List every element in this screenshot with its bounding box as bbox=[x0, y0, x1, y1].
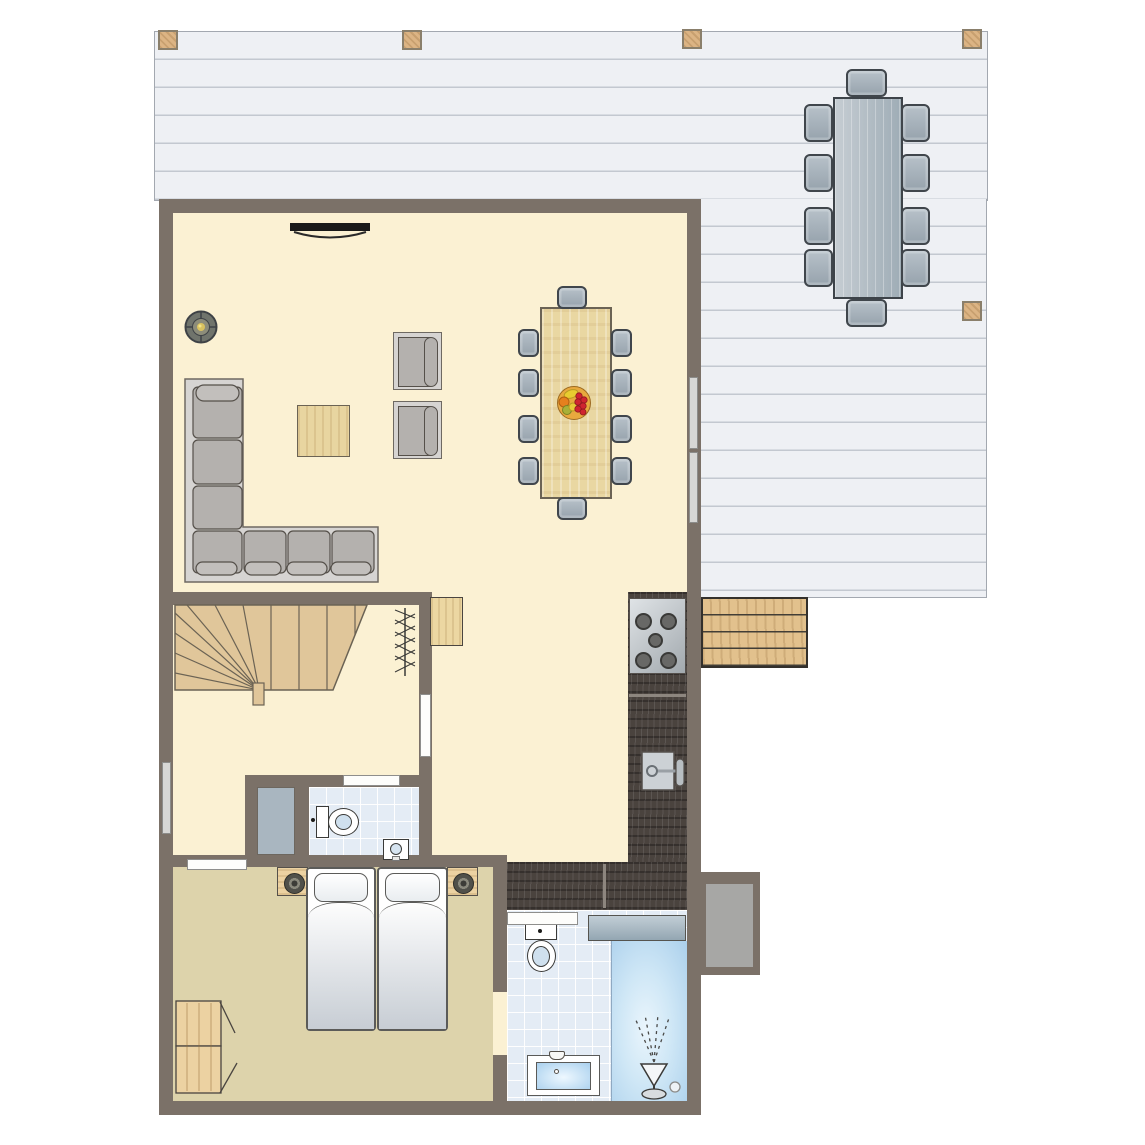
dining-chair bbox=[611, 329, 632, 357]
wall-toilet-top bbox=[245, 775, 432, 787]
toilet-button bbox=[311, 818, 315, 822]
staircase bbox=[173, 599, 373, 711]
hand-basin-tap bbox=[392, 856, 400, 861]
dining-chair bbox=[557, 497, 587, 520]
wood-stove bbox=[184, 310, 218, 344]
floor-plan bbox=[0, 0, 1145, 1145]
patio-chair bbox=[846, 299, 887, 327]
dining-chair bbox=[557, 286, 587, 309]
bed bbox=[377, 867, 448, 1031]
counter-divider bbox=[629, 694, 686, 697]
radiator bbox=[588, 915, 686, 941]
patio-chair bbox=[804, 104, 833, 142]
bedside-lamp bbox=[284, 873, 305, 894]
bed bbox=[306, 867, 376, 1031]
patio-chair bbox=[804, 207, 833, 245]
burner bbox=[635, 652, 652, 669]
dining-chair bbox=[611, 415, 632, 443]
kitchen-sink bbox=[640, 750, 690, 794]
burner bbox=[648, 633, 663, 648]
patio-dining-table bbox=[833, 97, 903, 299]
coat-rack bbox=[392, 606, 418, 678]
blanket bbox=[308, 902, 374, 1029]
armchair-backrest bbox=[424, 406, 438, 456]
pillow bbox=[385, 873, 440, 902]
vanity-basin bbox=[536, 1062, 591, 1090]
bedside-lamp bbox=[453, 873, 474, 894]
blanket bbox=[379, 902, 446, 1029]
window-deck-door-upper bbox=[689, 377, 698, 449]
deck-post bbox=[962, 29, 982, 49]
fruit-bowl bbox=[556, 385, 592, 421]
vanity-drain bbox=[554, 1069, 559, 1074]
wall-toilet-left bbox=[245, 775, 257, 867]
deck-post bbox=[158, 30, 178, 50]
counter-divider bbox=[603, 864, 606, 908]
toilet-button bbox=[538, 929, 542, 933]
vanity-faucet bbox=[549, 1051, 565, 1060]
patio-chair bbox=[901, 104, 930, 142]
toilet-bowl-inner bbox=[532, 946, 550, 967]
patio-chair bbox=[804, 249, 833, 287]
wardrobe bbox=[175, 1000, 245, 1095]
shower-head bbox=[628, 1010, 688, 1105]
patio-chair bbox=[804, 154, 833, 192]
wall-tv bbox=[284, 221, 376, 245]
toilet-bowl-inner bbox=[335, 814, 352, 830]
window-deck-door-lower bbox=[689, 452, 698, 523]
burner bbox=[635, 613, 652, 630]
patio-chair bbox=[901, 249, 930, 287]
door-bedroom bbox=[187, 859, 247, 870]
wall-bed-bath-upper bbox=[493, 867, 507, 992]
hand-basin-bowl bbox=[390, 843, 402, 855]
wall-bed-bath-lower bbox=[493, 1055, 507, 1101]
door-hall bbox=[420, 694, 431, 757]
outdoor-pad bbox=[706, 884, 753, 967]
coffee-table bbox=[297, 405, 350, 457]
dining-chair bbox=[611, 369, 632, 397]
deck-post bbox=[402, 30, 422, 50]
door-toilet-room bbox=[343, 775, 400, 786]
corner-sofa bbox=[183, 377, 383, 587]
armchair bbox=[393, 401, 442, 459]
dining-chair bbox=[611, 457, 632, 485]
patio-chair bbox=[901, 154, 930, 192]
dining-chair bbox=[518, 329, 539, 357]
patio-chair bbox=[846, 69, 887, 97]
dining-chair bbox=[518, 369, 539, 397]
hall-closet bbox=[257, 787, 295, 855]
window-left-wall bbox=[162, 762, 171, 834]
dining-chair bbox=[518, 415, 539, 443]
door-bathroom bbox=[507, 912, 578, 925]
outdoor-bench bbox=[701, 597, 808, 668]
burner bbox=[660, 652, 677, 669]
deck-post bbox=[682, 29, 702, 49]
patio-chair bbox=[901, 207, 930, 245]
pillow bbox=[314, 873, 368, 902]
kitchen-counter-bottom bbox=[507, 862, 687, 910]
armchair-backrest bbox=[424, 337, 438, 387]
hall-cabinet bbox=[430, 597, 463, 646]
armchair bbox=[393, 332, 442, 390]
burner bbox=[660, 613, 677, 630]
deck-post bbox=[962, 301, 982, 321]
dining-chair bbox=[518, 457, 539, 485]
